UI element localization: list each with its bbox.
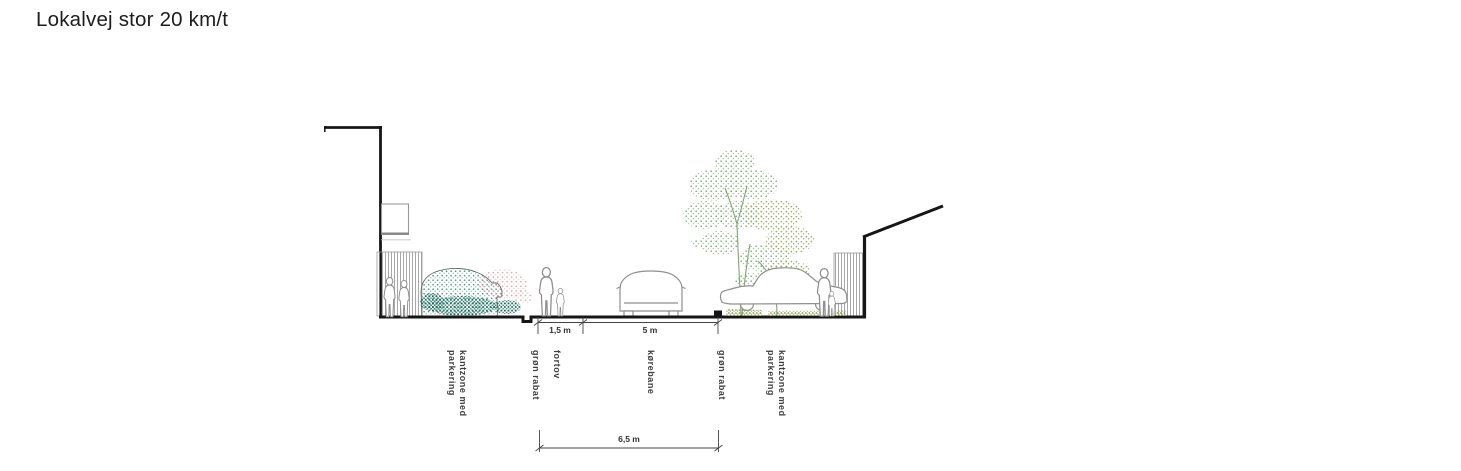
street-section-page: Lokalvej stor 20 km/t — [0, 0, 1461, 471]
car-front-view — [617, 271, 686, 316]
pedestrian-child — [556, 288, 564, 316]
cross-section-drawing — [0, 0, 1461, 471]
pedestrian-adult — [540, 268, 554, 316]
dimension-fortov: 1,5 m — [549, 325, 571, 335]
kerb — [714, 311, 722, 318]
zone-label-kantzone-left: kantzone med parkering — [446, 350, 468, 417]
dimension-total: 6,5 m — [618, 434, 640, 444]
zone-label-kantzone-right: kantzone med parkering — [765, 350, 787, 417]
left-fence — [377, 252, 422, 316]
right-fence — [834, 253, 863, 316]
zone-label-koerebane: kørebane — [645, 350, 656, 394]
dimension-koerebane: 5 m — [643, 325, 658, 335]
bush — [420, 268, 532, 316]
right-building — [863, 206, 943, 318]
dimension-lines — [534, 317, 723, 452]
zone-label-fortov: fortov — [551, 350, 562, 379]
zone-label-groen-rabat-right: grøn rabat — [716, 350, 727, 400]
window — [381, 204, 411, 240]
left-building — [324, 126, 382, 318]
zone-label-groen-rabat-left: grøn rabat — [530, 350, 541, 400]
